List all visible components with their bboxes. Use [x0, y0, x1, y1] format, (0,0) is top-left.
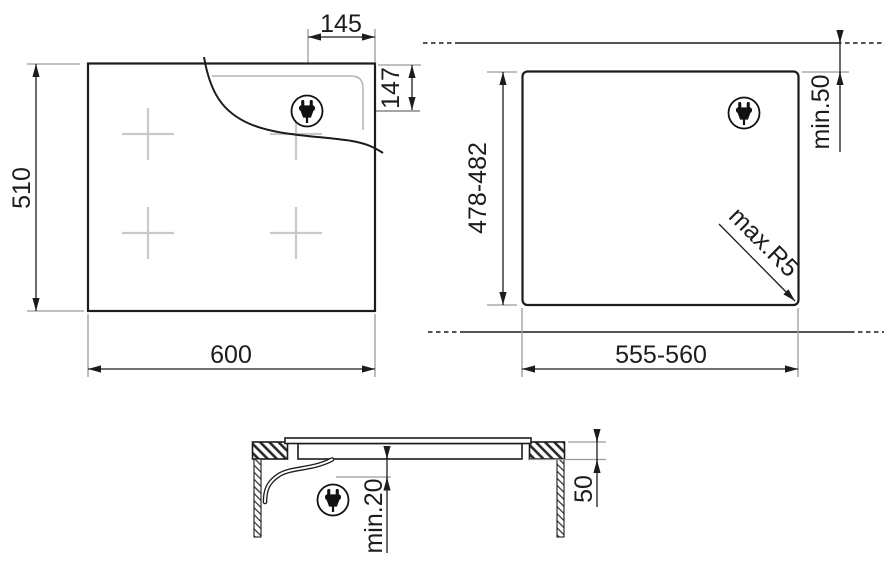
dim-cutout-width-label: 555-560: [615, 341, 707, 369]
dim-width-label: 600: [210, 341, 252, 369]
dim-plug-x-label: 145: [320, 10, 362, 38]
power-plug-icon: [318, 485, 349, 516]
dim-cutout-depth-label: 478-482: [464, 142, 492, 234]
cabinet-panel-right: [557, 459, 564, 537]
dim-depth-label: 510: [8, 167, 36, 209]
power-plug-icon: [729, 98, 760, 129]
worktop-section-right: [530, 442, 565, 459]
power-plug-icon: [292, 96, 323, 127]
installation-diagram: 510 600 145 147 478-482 555-560: [0, 0, 896, 563]
diagram-svg: 510 600 145 147 478-482 555-560: [0, 0, 896, 563]
worktop-section-left: [253, 442, 288, 459]
dim-worktop-thickness-label: 50: [570, 475, 598, 503]
dim-bottom-clearance-label: min.20: [360, 478, 388, 553]
dim-rear-clearance-label: min.50: [807, 74, 835, 149]
worktop-cutout-view: 478-482 555-560 min.50 max.R5: [423, 31, 884, 377]
side-section-view: min.20 50: [253, 430, 607, 554]
dim-plug-y-label: 147: [377, 67, 405, 109]
hob-top-view: 510 600 145 147: [8, 10, 421, 377]
hob-outline: [88, 64, 375, 312]
hob-glass-section: [285, 438, 531, 444]
cabinet-panel-left: [254, 459, 261, 537]
hob-body-section: [298, 444, 522, 460]
